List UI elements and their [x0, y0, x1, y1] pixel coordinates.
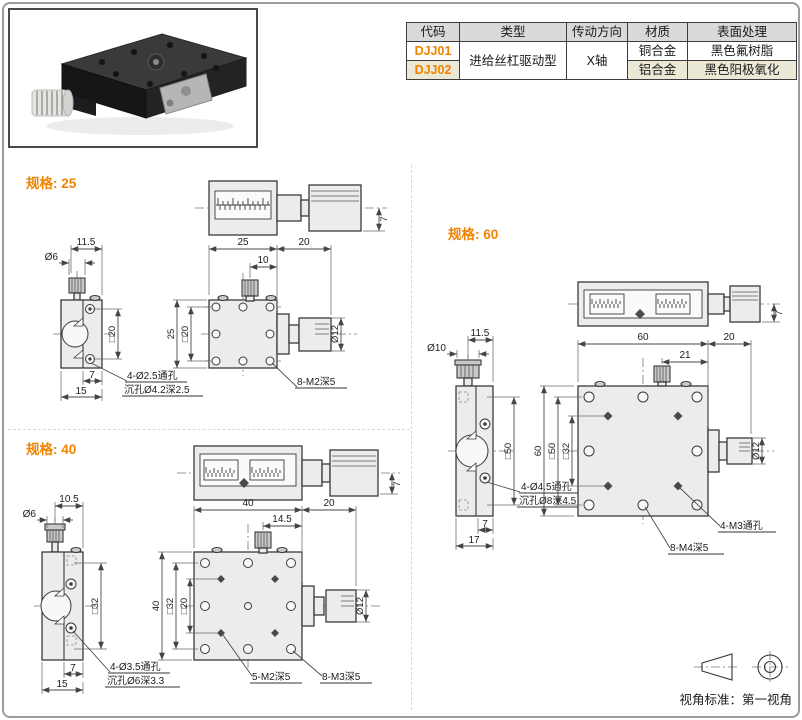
tap-note: 8-M2深5 — [297, 376, 336, 388]
dim-label: Ø12 — [751, 442, 762, 460]
section-title-60: 规格: 60 — [448, 223, 498, 243]
dim-label: 21 — [679, 350, 691, 361]
spec40-side-view: 10.5 Ø6 □32 7 15 4-Ø3.5通孔 沉孔Ø6深3.3 — [23, 494, 180, 694]
spec25-plan-view: 7 — [195, 181, 390, 235]
spec25-front-view: 25 20 10 25 □20 Ø12 8-M2深5 — [166, 237, 357, 388]
spec25-side-view: 11.5 Ø6 □20 7 15 4-Ø2.5通孔 沉孔Ø4.2深2.5 — [45, 237, 203, 401]
spec60-front-view: 60 20 21 60 □50 □32 Ø12 4-M3通孔 8-M4深5 — [533, 332, 776, 554]
finish-cell: 黑色氟树脂 — [688, 42, 797, 61]
dim-label: 10 — [257, 255, 269, 266]
dim-label: □32 — [165, 598, 176, 614]
code-cell: DJJ01 — [407, 42, 460, 61]
dim-label: 7 — [70, 663, 76, 674]
view-standard-label: 视角标准：第一视角 — [679, 689, 792, 708]
tap-note: 8-M3深5 — [322, 671, 361, 683]
dim-label: □20 — [179, 598, 190, 614]
dim-label: 60 — [637, 332, 649, 343]
col-header-direction: 传动方向 — [567, 23, 628, 42]
dim-label: 7 — [379, 216, 390, 221]
dim-label: 60 — [533, 446, 544, 457]
dim-label: Ø10 — [427, 343, 446, 354]
spec40-front-view: 40 20 14.5 40 □32 □20 Ø12 5-M2深5 8-M3深5 — [151, 498, 380, 683]
dim-label: 17 — [468, 535, 480, 546]
projection-cone-end-view — [752, 651, 788, 684]
spec40-plan-view: 7 — [177, 446, 403, 500]
col-header-code: 代码 — [407, 23, 460, 42]
product-photo — [10, 10, 256, 146]
vertical-divider — [411, 165, 412, 710]
dim-label: 10.5 — [59, 494, 79, 505]
stage-photo-illustration — [32, 34, 246, 135]
hole-note: 4-Ø2.5通孔 — [127, 370, 178, 382]
dim-label: 40 — [151, 601, 162, 612]
dim-label: 14.5 — [272, 514, 292, 525]
col-header-material: 材质 — [628, 23, 688, 42]
dim-label: 20 — [723, 332, 735, 343]
dim-label: 11.5 — [77, 237, 96, 248]
dim-label: □20 — [180, 326, 191, 342]
hole-note: 沉孔Ø6深3.3 — [107, 674, 165, 687]
dim-label: Ø6 — [45, 252, 59, 263]
dim-label: 7 — [392, 481, 403, 486]
dim-label: 20 — [298, 237, 310, 248]
first-angle-symbol — [688, 650, 798, 694]
dim-label: 40 — [242, 498, 254, 509]
dim-label: □50 — [547, 443, 558, 459]
spec60-plan-view: 7 — [568, 282, 785, 326]
tap-note: 8-M4深5 — [670, 542, 709, 554]
col-header-finish: 表面处理 — [688, 23, 797, 42]
dim-label: 15 — [56, 679, 68, 690]
dim-label: Ø6 — [23, 509, 37, 520]
material-cell: 铜合金 — [628, 42, 688, 61]
hole-note: 4-Ø4.5通孔 — [521, 481, 572, 493]
dim-label: □32 — [561, 443, 572, 459]
dim-label: 25 — [166, 329, 177, 340]
dim-label: 7 — [482, 519, 488, 530]
hole-note: 沉孔Ø4.2深2.5 — [124, 383, 190, 396]
projection-cone-side-view — [694, 654, 740, 680]
type-cell: 进给丝杠驱动型 — [460, 42, 567, 80]
finish-cell: 黑色阳极氧化 — [688, 61, 797, 80]
direction-cell: X轴 — [567, 42, 628, 80]
tap-note: 5-M2深5 — [252, 671, 291, 683]
material-cell: 铝合金 — [628, 61, 688, 80]
dim-label: 20 — [323, 498, 335, 509]
table-header-row: 代码 类型 传动方向 材质 表面处理 — [407, 23, 797, 42]
dim-label: 11.5 — [471, 328, 490, 339]
dim-label: 7 — [89, 370, 95, 381]
product-photo-box — [8, 8, 258, 148]
spec-table: 代码 类型 传动方向 材质 表面处理 DJJ01 进给丝杠驱动型 X轴 铜合金 … — [406, 22, 797, 80]
drawing-spec60: 7 11.5 Ø10 □50 7 1 — [428, 278, 802, 578]
dim-label: □20 — [107, 326, 118, 342]
dim-label: □32 — [90, 598, 101, 614]
dim-label: 25 — [237, 237, 249, 248]
drawing-spec25: 7 11.5 Ø6 □20 7 15 — [25, 175, 400, 425]
tap-note: 4-M3通孔 — [720, 520, 763, 532]
dim-label: 7 — [774, 310, 785, 315]
dim-label: Ø12 — [355, 597, 366, 615]
horizontal-divider — [8, 429, 410, 430]
dim-label: Ø12 — [330, 325, 341, 343]
spec60-side-view: 11.5 Ø10 □50 7 17 4-Ø4.5通孔 沉孔Ø8深4.5 — [427, 328, 596, 550]
drawing-spec40: 7 10.5 Ø6 □32 7 — [12, 440, 410, 715]
dim-label: 15 — [75, 386, 87, 397]
table-row: DJJ01 进给丝杠驱动型 X轴 铜合金 黑色氟树脂 — [407, 42, 797, 61]
code-cell: DJJ02 — [407, 61, 460, 80]
dim-label: □50 — [503, 443, 514, 459]
col-header-type: 类型 — [460, 23, 567, 42]
hole-note: 4-Ø3.5通孔 — [110, 661, 161, 673]
